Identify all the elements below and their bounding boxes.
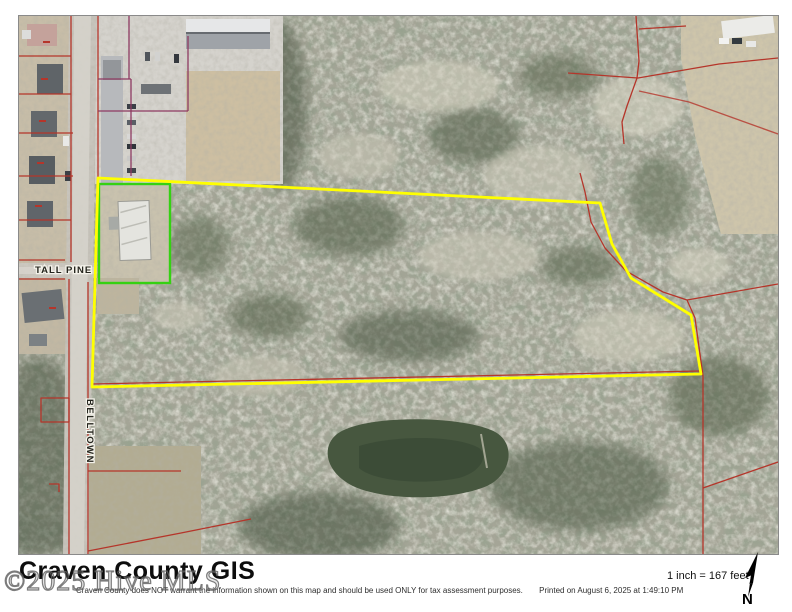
- pond: [328, 419, 509, 497]
- north-arrow: N: [736, 551, 770, 609]
- north-label: N: [742, 591, 753, 608]
- printed-timestamp: Printed on August 6, 2025 at 1:49:10 PM: [539, 586, 683, 595]
- road-label-belltown: BELLTOWN: [84, 399, 95, 464]
- mls-watermark: ©2025 Hive MLS: [4, 566, 221, 598]
- gis-print-page: TALL PINE BELLTOWN Craven County GIS ©20…: [0, 0, 792, 612]
- road-label-tall-pine: TALL PINE: [35, 265, 92, 276]
- aerial-map-image: TALL PINE BELLTOWN: [18, 15, 779, 555]
